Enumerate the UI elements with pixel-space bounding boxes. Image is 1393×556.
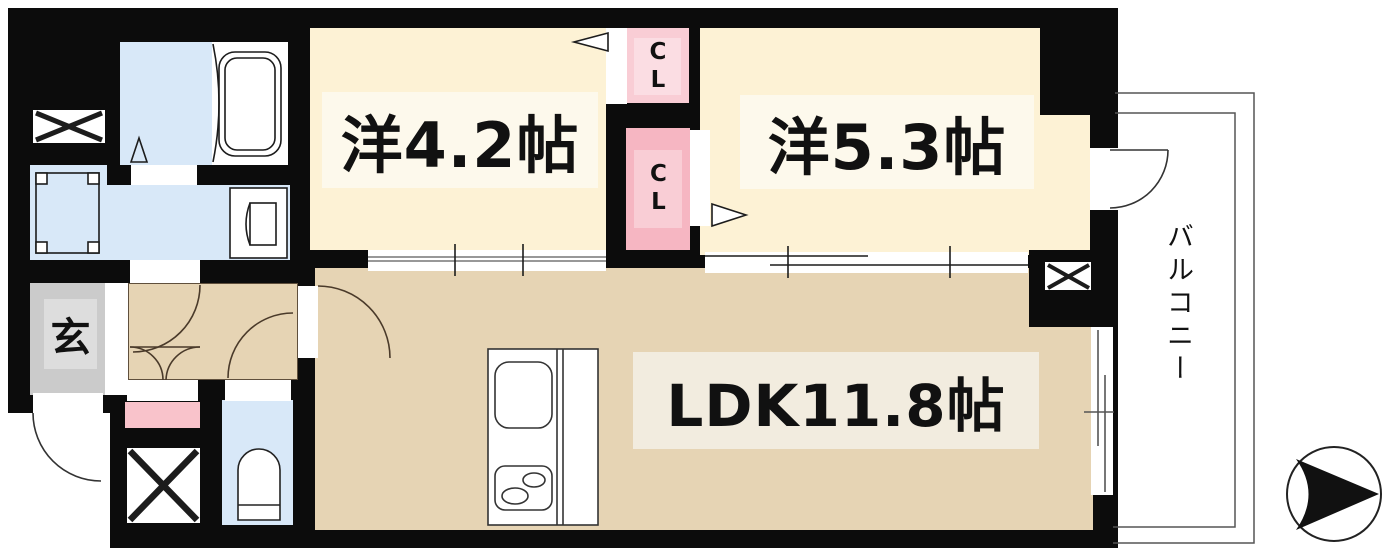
north-arrow-icon [1287, 447, 1381, 541]
balcony-door-arc [1110, 150, 1168, 208]
closet-bottom-inner: CL [634, 150, 682, 228]
balcony-label: バルコニー [1158, 222, 1197, 387]
closet-top-inner: CL [634, 38, 681, 95]
hall-ldk-door [298, 286, 318, 358]
balcony-label-box: バルコニー [1158, 222, 1197, 432]
toilet-room [222, 400, 293, 525]
vent-window [1045, 262, 1091, 290]
fixed-window [33, 110, 105, 143]
bedroom1-sliding-door [368, 250, 606, 271]
balcony-door-opening [1090, 148, 1118, 210]
washroom-hall-door [130, 260, 200, 283]
bedroom2-label-box: 洋5.3帖 [740, 95, 1034, 189]
bedroom2-sliding-door [705, 252, 1028, 273]
bedroom2-corner-wall [1040, 8, 1118, 115]
bedroom2-label: 洋5.3帖 [768, 97, 1007, 187]
closet-top-label: CL [646, 39, 669, 95]
balcony-window [1091, 327, 1113, 495]
bedroom1-label-box: 洋4.2帖 [322, 92, 598, 188]
closet-top-door [606, 28, 627, 104]
washroom-main [107, 185, 290, 260]
hall-closet-door [127, 380, 198, 401]
hallway [128, 283, 298, 380]
entrance-label: 玄 [51, 305, 91, 363]
exterior-cutout [0, 413, 110, 556]
closet-bottom-label: CL [647, 161, 670, 217]
bathroom-door [131, 165, 197, 185]
closet-bottom-door [690, 130, 710, 226]
washroom-left [30, 165, 107, 260]
floorplan-canvas: 玄 CL CL 洋4.2帖 洋5.3帖 LDK11.8帖 バルコニー [0, 0, 1393, 556]
entrance-door-opening [33, 393, 103, 413]
bedroom1-label: 洋4.2帖 [341, 95, 580, 185]
bathtub-zone [212, 42, 288, 165]
ldk-label-box: LDK11.8帖 [633, 352, 1039, 449]
ldk-label: LDK11.8帖 [666, 359, 1005, 443]
pipe-shaft [127, 448, 200, 523]
hall-closet-strip [125, 402, 200, 428]
entrance-label-box: 玄 [44, 299, 97, 369]
entrance-step [105, 283, 128, 395]
toilet-door [225, 380, 291, 401]
